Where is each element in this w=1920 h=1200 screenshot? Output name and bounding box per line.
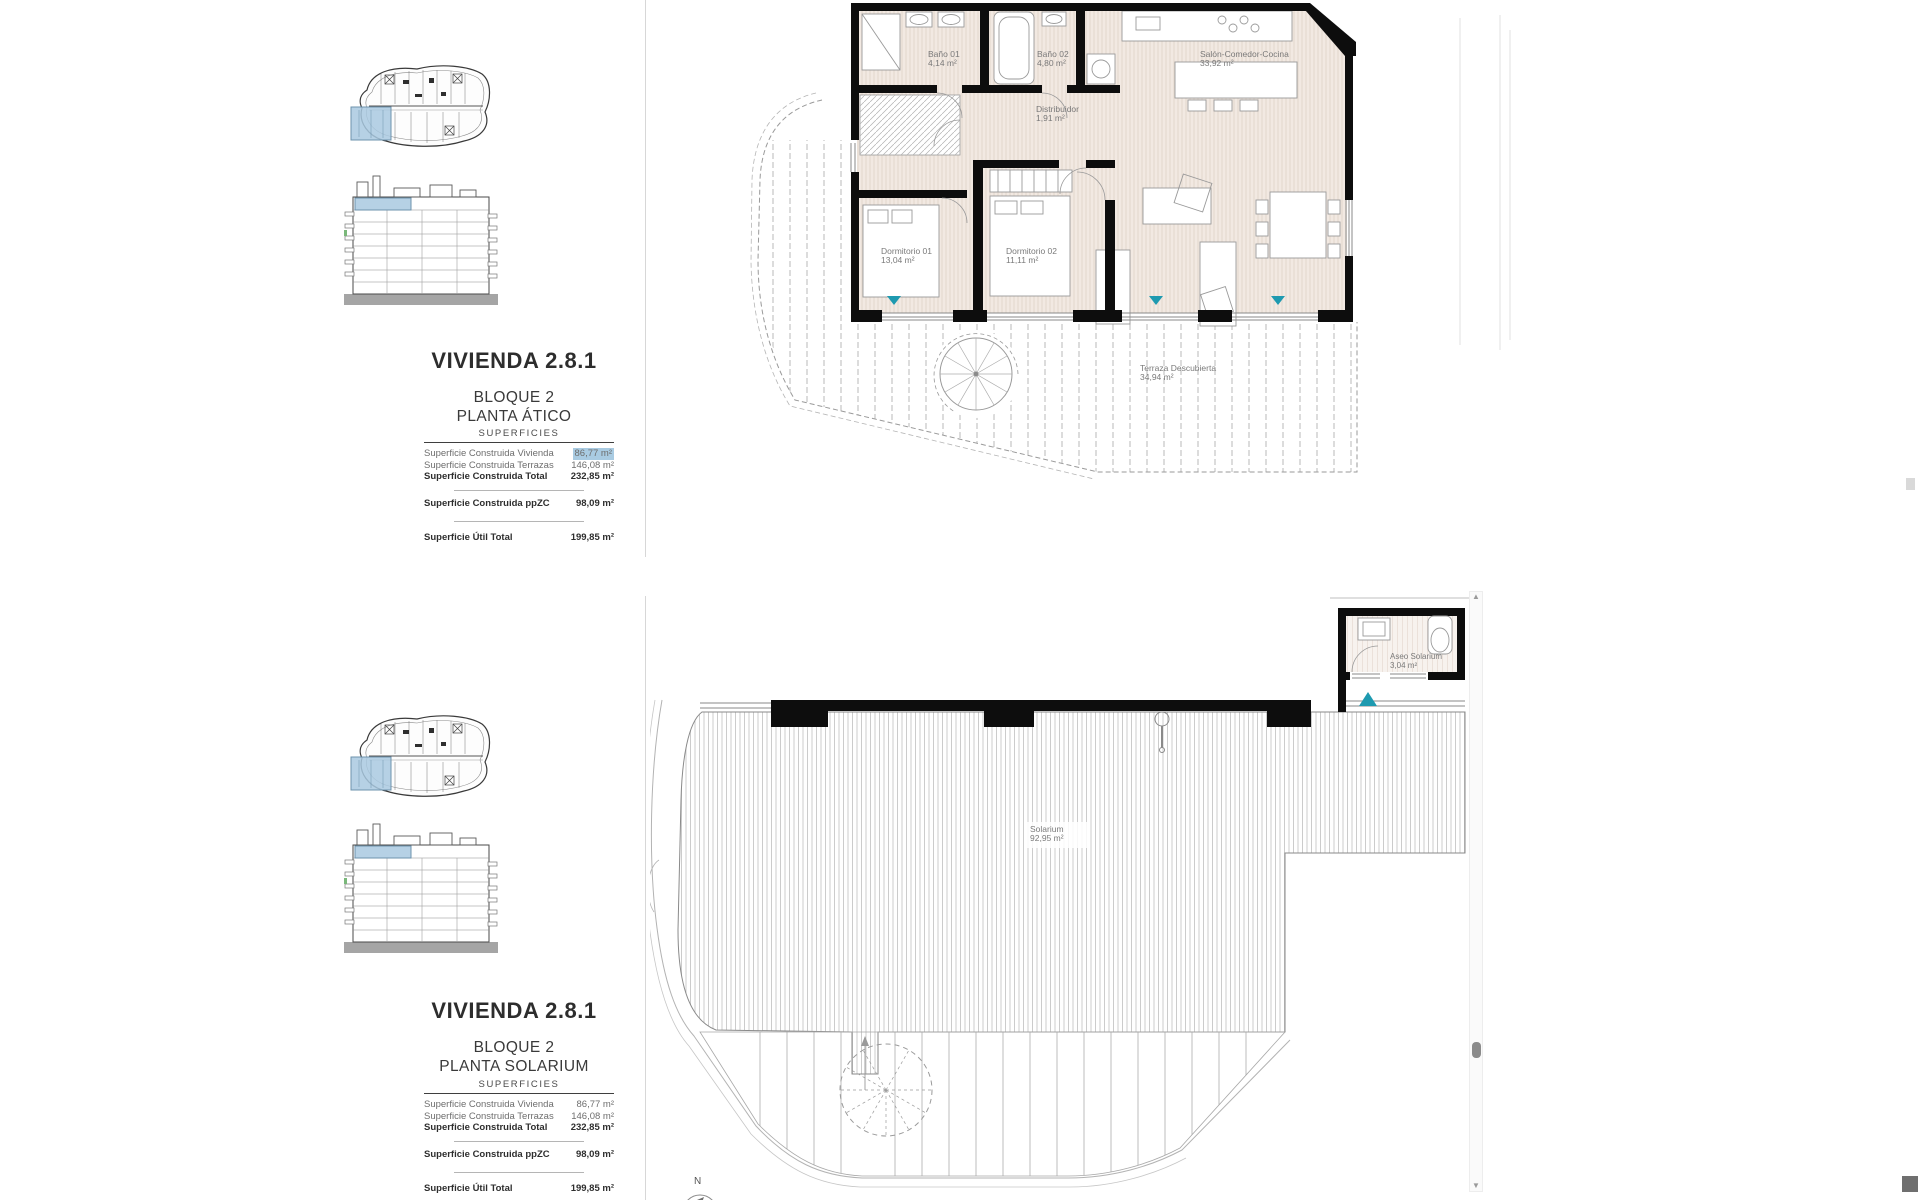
level-marker xyxy=(344,230,347,236)
table-row: Superficie Útil Total 199,85 m² xyxy=(424,532,614,544)
scroll-down-icon[interactable]: ▼ xyxy=(1469,1181,1483,1191)
compass-north-icon: N xyxy=(683,1176,717,1200)
building-keyplan-bottom xyxy=(345,710,495,802)
scrollbar-corner xyxy=(1902,1176,1918,1192)
superficies-header: SUPERFICIES xyxy=(424,1079,614,1094)
row-value-highlighted: 86,77 m² xyxy=(573,448,615,460)
table-divider xyxy=(454,521,584,522)
floor-label: PLANTA SOLARIUM xyxy=(330,1058,698,1077)
unit-title: VIVIENDA 2.8.1 xyxy=(330,998,698,1024)
page-divider-top xyxy=(645,0,646,557)
row-label: Superficie Construida Terrazas xyxy=(424,1111,554,1123)
aseo-solarium: Aseo Solarium 3,04 m² xyxy=(1330,598,1482,712)
floor-plan-solarium: Aseo Solarium 3,04 m² Solarium 92,95 m² … xyxy=(650,580,1495,1200)
solarium-deck xyxy=(678,712,1465,1074)
teal-entry-marker xyxy=(1359,692,1377,706)
building-elevation-top xyxy=(342,168,500,310)
unit-location-highlight xyxy=(355,846,411,858)
room-area: 4,14 m² xyxy=(928,58,957,68)
unit-subtitle: BLOQUE 2 PLANTA ÁTICO xyxy=(330,389,698,427)
page-edge-marker xyxy=(1906,478,1915,490)
table-divider xyxy=(454,490,584,491)
row-label: Superficie Construida ppZC xyxy=(424,1149,550,1161)
svg-text:N: N xyxy=(694,1176,701,1187)
superficies-header: SUPERFICIES xyxy=(424,428,614,443)
table-divider xyxy=(454,1172,584,1173)
row-label: Superficie Construida ppZC xyxy=(424,498,550,510)
lower-terrace-joists xyxy=(760,1032,1246,1180)
page-divider-bottom xyxy=(645,596,646,1200)
ground-bar xyxy=(344,942,498,953)
row-label: Superficie Construida Terrazas xyxy=(424,460,554,472)
room-label: Aseo Solarium xyxy=(1390,652,1442,661)
room-area: 3,04 m² xyxy=(1390,661,1417,670)
room-area: 11,11 m² xyxy=(1006,255,1038,265)
scrollbar-track[interactable] xyxy=(1469,591,1483,1192)
superficies-table: SUPERFICIES Superficie Construida Vivien… xyxy=(424,1079,614,1195)
building-keyplan-top xyxy=(345,60,495,152)
superficies-table: SUPERFICIES Superficie Construida Vivien… xyxy=(424,428,614,544)
table-row: Superficie Construida Total 232,85 m² xyxy=(424,1122,614,1134)
scrollbar-thumb[interactable] xyxy=(1472,1042,1481,1058)
row-value: 86,77 m² xyxy=(577,1099,615,1111)
unit-location-highlight xyxy=(355,198,411,210)
row-value: 199,85 m² xyxy=(571,1183,614,1195)
room-area: 92,95 m² xyxy=(1030,833,1064,843)
floor-plan-atico: Baño 01 4,14 m² Baño 02 4,80 m² Salón-Co… xyxy=(650,0,1520,557)
row-label: Superficie Construida Total xyxy=(424,471,547,483)
row-label: Superficie Construida Vivienda xyxy=(424,1099,554,1111)
unit-title: VIVIENDA 2.8.1 xyxy=(330,348,698,374)
table-row: Superficie Construida Terrazas 146,08 m² xyxy=(424,460,614,472)
row-value: 98,09 m² xyxy=(576,498,614,510)
spiral-stair xyxy=(932,330,1020,418)
table-row: Superficie Construida Total 232,85 m² xyxy=(424,471,614,483)
room-area: 33,92 m² xyxy=(1200,58,1234,68)
entry-stairwell xyxy=(860,95,960,155)
building-elevation-bottom xyxy=(342,816,500,958)
unit-subtitle: BLOQUE 2 PLANTA SOLARIUM xyxy=(330,1039,698,1077)
row-label: Superficie Construida Vivienda xyxy=(424,448,554,460)
row-value: 98,09 m² xyxy=(576,1149,614,1161)
floor-label: PLANTA ÁTICO xyxy=(330,408,698,427)
table-row: Superficie Construida Vivienda 86,77 m² xyxy=(424,448,614,460)
row-value: 146,08 m² xyxy=(571,460,614,472)
neighbour-outline xyxy=(1460,15,1510,350)
solarium-label: Solarium 92,95 m² xyxy=(1026,822,1090,848)
table-row: Superficie Útil Total 199,85 m² xyxy=(424,1183,614,1195)
room-area: 1,91 m² xyxy=(1036,113,1065,123)
row-value: 199,85 m² xyxy=(571,532,614,544)
table-row: Superficie Construida ppZC 98,09 m² xyxy=(424,1149,614,1161)
table-row: Superficie Construida Terrazas 146,08 m² xyxy=(424,1111,614,1123)
row-label: Superficie Útil Total xyxy=(424,1183,513,1195)
row-label: Superficie Construida Total xyxy=(424,1122,547,1134)
table-row: Superficie Construida Vivienda 86,77 m² xyxy=(424,1099,614,1111)
row-label: Superficie Útil Total xyxy=(424,532,513,544)
ground-bar xyxy=(344,294,498,305)
room-area: 13,04 m² xyxy=(881,255,915,265)
level-marker xyxy=(344,878,347,884)
table-row: Superficie Construida ppZC 98,09 m² xyxy=(424,498,614,510)
row-value: 232,85 m² xyxy=(571,471,614,483)
room-area: 4,80 m² xyxy=(1037,58,1066,68)
row-value: 146,08 m² xyxy=(571,1111,614,1123)
room-area: 34,94 m² xyxy=(1140,372,1174,382)
block-label: BLOQUE 2 xyxy=(330,389,698,408)
table-divider xyxy=(454,1141,584,1142)
scroll-up-icon[interactable]: ▲ xyxy=(1469,592,1483,602)
row-value: 232,85 m² xyxy=(571,1122,614,1134)
block-label: BLOQUE 2 xyxy=(330,1039,698,1058)
